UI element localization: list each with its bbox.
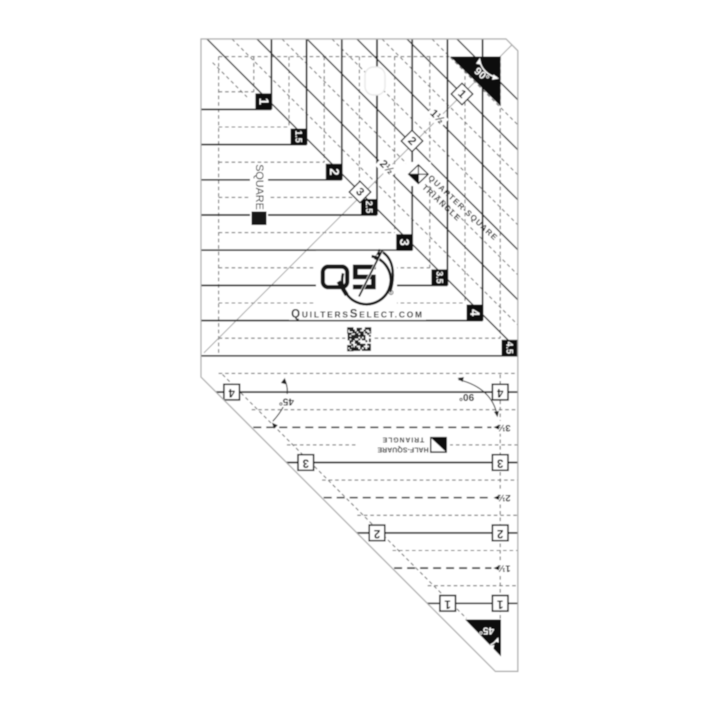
svg-text:90°: 90° — [459, 391, 474, 402]
svg-text:1.5: 1.5 — [294, 130, 304, 142]
svg-text:4: 4 — [468, 309, 482, 316]
svg-text:HALF-SQUARE: HALF-SQUARE — [377, 445, 429, 452]
svg-text:4: 4 — [496, 386, 503, 398]
svg-text:2: 2 — [374, 527, 380, 539]
svg-text:45°: 45° — [279, 395, 294, 406]
svg-text:45°: 45° — [479, 624, 494, 635]
svg-text:1: 1 — [496, 597, 503, 609]
svg-text:TRIANGLE: TRIANGLE — [382, 435, 424, 442]
svg-text:2: 2 — [327, 168, 341, 175]
svg-text:2: 2 — [497, 527, 503, 539]
svg-text:2.5: 2.5 — [364, 201, 374, 213]
svg-text:3.5: 3.5 — [434, 271, 444, 283]
svg-text:3: 3 — [497, 457, 503, 469]
svg-text:3: 3 — [303, 457, 309, 469]
svg-text:SQUARE: SQUARE — [253, 164, 265, 210]
svg-text:4.5: 4.5 — [505, 342, 515, 354]
svg-text:4: 4 — [228, 386, 235, 398]
svg-text:2½: 2½ — [497, 492, 510, 503]
svg-text:1½: 1½ — [497, 563, 510, 574]
svg-text:1: 1 — [256, 98, 270, 105]
svg-text:QUILTERSSELECT.COM: QUILTERSSELECT.COM — [291, 309, 424, 321]
svg-text:3: 3 — [397, 239, 411, 246]
svg-text:1: 1 — [444, 597, 451, 609]
svg-text:3½: 3½ — [497, 422, 510, 433]
